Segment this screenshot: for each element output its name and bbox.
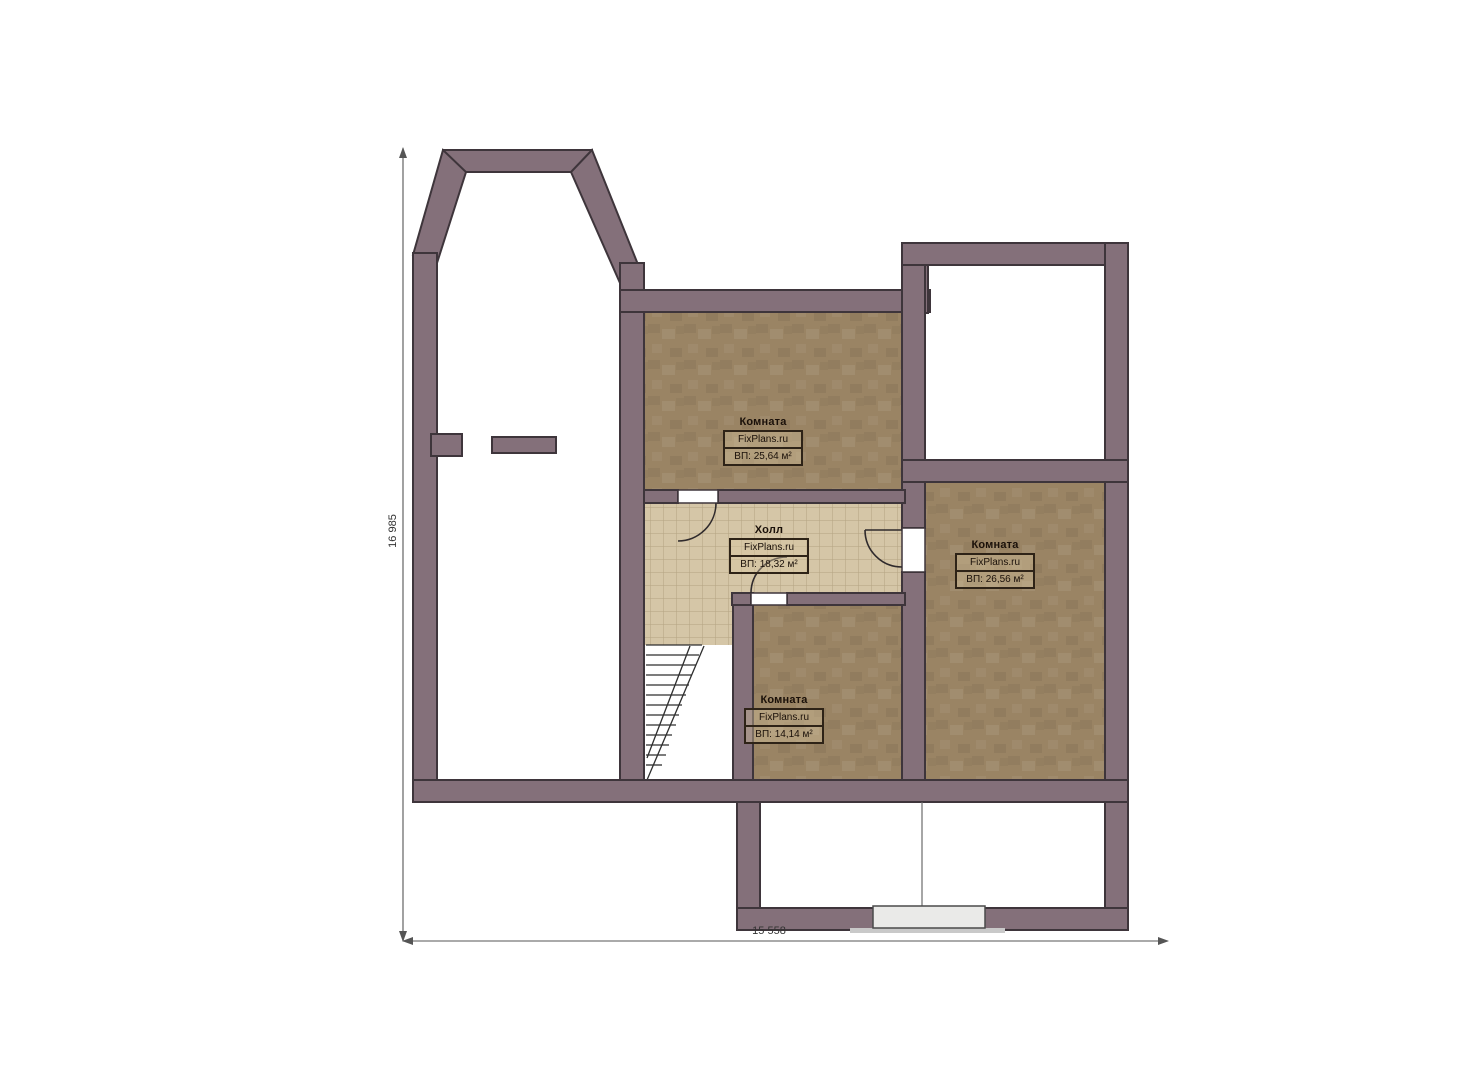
stair-break-line bbox=[647, 646, 704, 780]
room-info-box: FixPlans.ru ВП: 14,14 м² bbox=[744, 708, 824, 744]
dimension-label-width: 15 558 bbox=[734, 925, 804, 937]
room-label-hall: Холл FixPlans.ru ВП: 18,32 м² bbox=[729, 524, 809, 574]
wall-bottom-main bbox=[413, 780, 1128, 802]
wall-hall-room-bottom-a bbox=[732, 593, 751, 605]
brand-text: FixPlans.ru bbox=[725, 432, 801, 449]
room-name: Комната bbox=[955, 539, 1035, 551]
porch-details bbox=[850, 802, 1005, 933]
room-name: Холл bbox=[729, 524, 809, 536]
room-name: Комната bbox=[723, 416, 803, 428]
dimension-label-height: 16 985 bbox=[387, 501, 399, 561]
wall-hall-room-bottom-b bbox=[787, 593, 905, 605]
brand-text: FixPlans.ru bbox=[746, 710, 822, 727]
porch-french-door bbox=[873, 906, 985, 928]
room-label-right: Комната FixPlans.ru ВП: 26,56 м² bbox=[955, 539, 1035, 589]
floor-plan: Комната FixPlans.ru ВП: 25,64 м² Холл Fi… bbox=[0, 0, 1473, 1080]
dim-arrow-right bbox=[1158, 937, 1169, 945]
door-leaf-room-right bbox=[902, 528, 925, 572]
stair-edge-line bbox=[647, 646, 690, 758]
wall-room-top-hall-a bbox=[644, 490, 678, 503]
room-area: ВП: 18,32 м² bbox=[731, 557, 807, 572]
wall-right-section-top bbox=[902, 243, 1128, 265]
wall-stub-small bbox=[431, 434, 462, 456]
wall-tower-left-slant bbox=[413, 150, 466, 263]
room-label-top: Комната FixPlans.ru ВП: 25,64 м² bbox=[723, 416, 803, 466]
room-info-box: FixPlans.ru ВП: 25,64 м² bbox=[723, 430, 803, 466]
brand-text: FixPlans.ru bbox=[731, 540, 807, 557]
room-area: ВП: 14,14 м² bbox=[746, 727, 822, 742]
wall-right-outer bbox=[1105, 243, 1128, 930]
wall-main-left bbox=[620, 263, 644, 802]
staircase bbox=[646, 645, 704, 780]
wall-mid-vertical-upper bbox=[902, 265, 925, 528]
wall-main-top bbox=[620, 290, 930, 312]
floor-room-right bbox=[925, 482, 1106, 780]
room-info-box: FixPlans.ru ВП: 18,32 м² bbox=[729, 538, 809, 574]
wall-stairwell-room bbox=[733, 593, 753, 780]
room-info-box: FixPlans.ru ВП: 26,56 м² bbox=[955, 553, 1035, 589]
wall-stub-long bbox=[492, 437, 556, 453]
wall-room-top-hall-b bbox=[718, 490, 905, 503]
wall-tower-top bbox=[443, 150, 592, 172]
dim-arrow-up bbox=[399, 147, 407, 158]
floors bbox=[644, 312, 1106, 780]
room-name: Комната bbox=[744, 694, 824, 706]
room-area: ВП: 26,56 м² bbox=[957, 572, 1033, 587]
floor-room-bottom bbox=[753, 605, 902, 780]
room-area: ВП: 25,64 м² bbox=[725, 449, 801, 464]
room-label-bottom: Комната FixPlans.ru ВП: 14,14 м² bbox=[744, 694, 824, 744]
wall-topright-room-bottom bbox=[902, 460, 1128, 482]
door-leaf-room-bottom bbox=[751, 593, 787, 605]
wall-left-outer bbox=[413, 253, 437, 802]
brand-text: FixPlans.ru bbox=[957, 555, 1033, 572]
door-leaf-room-top bbox=[678, 490, 718, 503]
